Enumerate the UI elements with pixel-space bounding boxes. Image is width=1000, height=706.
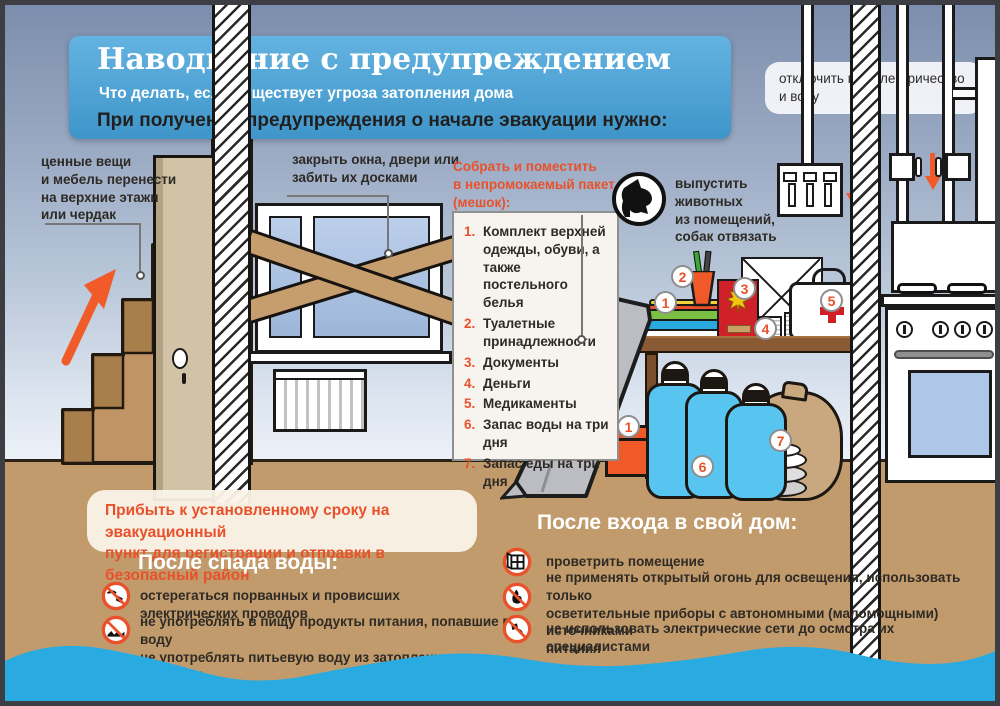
wall-corner — [975, 57, 995, 223]
leader-dot — [136, 271, 145, 280]
water-valve-2 — [945, 153, 971, 181]
stove-knob — [976, 321, 993, 338]
passport-stripe — [727, 325, 751, 333]
evacuation-note-text: Прибыть к установленному сроку на эвакуа… — [87, 490, 477, 597]
electric-conduit — [801, 5, 814, 167]
oven-handle — [894, 350, 994, 359]
marker-clothes: 1 — [654, 291, 677, 314]
window-pane-left — [269, 216, 302, 338]
marker-toiletries: 2 — [671, 265, 694, 288]
stove-body — [885, 307, 1000, 483]
leader-line — [139, 223, 141, 273]
leader-dot — [577, 335, 586, 344]
pack-item: 3.Документы — [464, 354, 609, 372]
valve-1-handle — [915, 157, 922, 177]
poster-title: Наводнение с предупреждением — [97, 42, 671, 77]
gas-pipe-1 — [896, 5, 909, 227]
poster-subtitle: Что делать, если существует угроза затоп… — [99, 85, 513, 103]
window-sill — [246, 351, 452, 364]
pillar-front — [212, 5, 251, 503]
gas-pipe-2 — [942, 5, 955, 227]
flood-water-wave — [5, 635, 995, 701]
stove-cooktop — [881, 294, 1000, 307]
evacuation-note-box: Прибыть к установленному сроку на эвакуа… — [87, 490, 477, 552]
down-arrow-head — [925, 176, 941, 190]
oven-window — [908, 370, 992, 458]
stove-knob — [932, 321, 949, 338]
animals-note: выпустить животных из помещений, собак о… — [675, 175, 805, 246]
marker-water: 6 — [691, 455, 714, 478]
door-keyhole — [182, 373, 186, 384]
pack-list-panel: 1.Комплект верхней одежды, обуви, а такж… — [452, 211, 619, 461]
leader-dot — [384, 249, 393, 258]
leader-line — [287, 195, 389, 197]
marker-box: 1 — [617, 415, 640, 438]
door-handle — [172, 348, 188, 369]
pack-heading: Собрать и поместить в непромокаемый паке… — [453, 158, 633, 211]
stove-knob — [954, 321, 971, 338]
marker-money: 4 — [754, 317, 777, 340]
pack-item: 7.Запас еды на три дня — [464, 455, 609, 491]
no-open-fire-icon — [502, 582, 532, 612]
dog-icon — [611, 171, 667, 227]
marker-medkit: 5 — [820, 289, 843, 312]
valve-2-handle — [935, 157, 942, 177]
no-wires-icon — [101, 581, 131, 611]
pack-item: 5.Медикаменты — [464, 395, 609, 413]
fuse-switch — [803, 172, 817, 182]
burner-grate — [947, 283, 987, 294]
fuse-switch — [823, 172, 837, 182]
radiator — [273, 369, 367, 432]
up-arrow-icon — [50, 263, 126, 367]
leader-line — [45, 223, 141, 225]
leader-line — [387, 195, 389, 251]
windows-note: закрыть окна, двери или забить их доскам… — [292, 151, 462, 187]
water-valve-1 — [889, 153, 915, 181]
burner-grate — [897, 283, 937, 294]
flood-infographic: Наводнение с предупреждением Что делать,… — [0, 0, 1000, 706]
leader-line — [581, 215, 583, 337]
header-banner: Наводнение с предупреждением Что делать,… — [69, 36, 731, 139]
radiator-top-bar — [276, 372, 364, 380]
stove-knob — [896, 321, 913, 338]
ventilate-icon — [502, 547, 532, 577]
valuables-note: ценные вещи и мебель перенести на верхни… — [41, 153, 201, 224]
pack-item: 6.Запас воды на три дня — [464, 416, 609, 452]
after-water-heading: После спада воды: — [138, 551, 338, 575]
after-entry-heading: После входа в свой дом: — [537, 511, 797, 535]
marker-documents: 3 — [733, 277, 756, 300]
pack-item: 1.Комплект верхней одежды, обуви, а такж… — [464, 223, 609, 312]
marker-food: 7 — [769, 429, 792, 452]
gas-stove — [881, 221, 1000, 483]
pack-item: 2.Туалетные принадлежности — [464, 315, 609, 351]
pack-item: 4.Деньги — [464, 375, 609, 393]
poster-instruction: При получении предупреждения о начале эв… — [97, 110, 668, 132]
